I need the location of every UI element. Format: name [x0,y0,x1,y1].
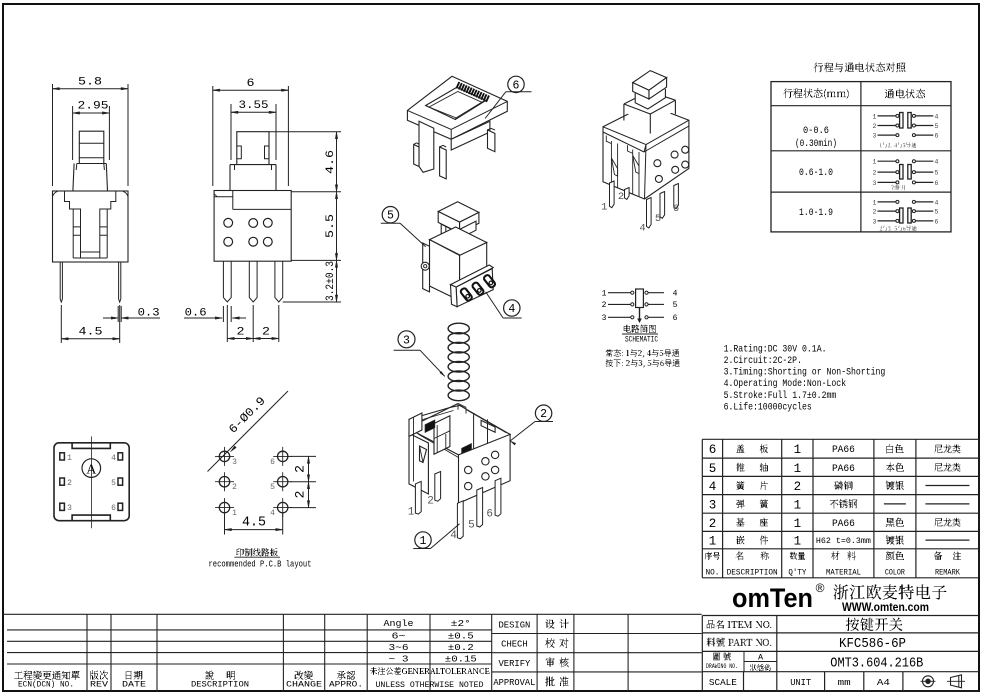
svg-text:3: 3 [873,218,877,225]
svg-text:1: 1 [794,498,802,512]
svg-text:PA66: PA66 [832,444,855,455]
svg-text:6: 6 [111,504,116,513]
svg-text:0-0.6: 0-0.6 [803,126,829,137]
svg-text:REMARK: REMARK [935,568,960,577]
svg-text:2: 2 [262,327,270,339]
svg-text:omTen: omTen [732,583,813,613]
svg-text:1: 1 [408,507,415,519]
svg-text:2.Circuit:2C-2P.: 2.Circuit:2C-2P. [724,355,802,367]
svg-text:2: 2 [293,491,308,499]
svg-text:4: 4 [673,290,678,299]
svg-text:2: 2 [540,408,547,421]
svg-text:2.95: 2.95 [78,101,109,113]
svg-text:DRAWING NO.: DRAWING NO. [706,663,738,670]
svg-text:REV: REV [90,680,109,690]
svg-text:1: 1 [873,113,877,120]
svg-text:2: 2 [794,480,802,494]
svg-text:1: 1 [794,443,802,457]
svg-text:4: 4 [639,223,645,235]
svg-text:2: 2 [427,496,434,508]
svg-text:6: 6 [935,218,939,225]
svg-text:DESCRIPTION: DESCRIPTION [727,568,778,577]
svg-text:1: 1 [420,535,427,548]
svg-text:2: 2 [232,483,237,492]
svg-text:MATERIAL: MATERIAL [826,568,861,577]
svg-text:6: 6 [513,79,520,92]
svg-text:2: 2 [709,517,717,531]
svg-text:±0.2: ±0.2 [448,642,474,653]
svg-text:CHECH: CHECH [501,640,528,650]
svg-text:6: 6 [709,443,717,457]
svg-text:6: 6 [270,458,275,467]
svg-text:4: 4 [935,159,939,166]
svg-text:2: 2 [873,209,877,216]
svg-text:6: 6 [673,314,678,323]
svg-text:A: A [758,653,764,663]
svg-text:UNLESS OTHERWISE NOTED: UNLESS OTHERWISE NOTED [376,680,484,690]
svg-text:4: 4 [508,303,515,316]
svg-text:APPROVAL: APPROVAL [493,678,535,688]
svg-text:Angle: Angle [384,618,414,629]
svg-text:2: 2 [67,479,72,488]
svg-text:0.6-1.0: 0.6-1.0 [799,168,833,179]
svg-text:2: 2 [873,170,877,177]
svg-text:5: 5 [387,210,394,223]
svg-text:®: ® [816,581,825,595]
svg-text:2: 2 [293,465,308,473]
svg-text:4: 4 [270,509,275,518]
svg-text:3: 3 [709,498,717,512]
svg-text:5: 5 [468,519,475,531]
svg-text:DESCRIPTION: DESCRIPTION [191,680,249,690]
svg-text:Q'TY: Q'TY [788,568,806,577]
svg-text:5: 5 [655,213,661,225]
svg-text:1: 1 [709,535,717,549]
svg-text:4.Operating Mode:Non-Lock: 4.Operating Mode:Non-Lock [724,378,847,390]
svg-text:mm: mm [838,677,851,688]
svg-text:WWW.omten.com: WWW.omten.com [842,600,929,614]
svg-text:PA66: PA66 [832,463,855,474]
svg-text:NO.: NO. [705,568,719,577]
svg-text:5: 5 [709,462,717,476]
svg-text:(0.30min): (0.30min) [795,138,837,150]
svg-text:A4: A4 [877,677,890,688]
svg-text:1: 1 [602,290,607,299]
svg-text:SCHEMATIC: SCHEMATIC [625,336,658,345]
svg-text:1: 1 [873,159,877,166]
svg-text:ECN(DCN) NO.: ECN(DCN) NO. [18,680,74,690]
svg-text:3: 3 [602,314,607,323]
svg-text:5.8: 5.8 [78,77,102,89]
svg-text:2: 2 [618,191,624,203]
svg-text:5: 5 [935,209,939,216]
svg-text:5: 5 [673,301,678,310]
svg-text:4: 4 [450,530,457,542]
svg-text:3: 3 [403,334,410,347]
svg-text:2: 2 [602,301,607,310]
svg-text:recommended P.C.B layout: recommended P.C.B layout [209,559,312,569]
svg-text:4: 4 [709,480,717,494]
svg-text:SCALE: SCALE [709,677,737,688]
svg-text:5: 5 [935,123,939,130]
svg-text:4.5: 4.5 [242,514,266,530]
svg-text:PA66: PA66 [832,518,855,529]
svg-text:3.Timing:Shorting or Non-Short: 3.Timing:Shorting or Non-Shorting [724,367,886,379]
svg-text:OMT3.604.216B: OMT3.604.216B [830,657,923,672]
svg-text:1: 1 [794,517,802,531]
svg-text:6: 6 [935,180,939,187]
svg-text:6~: 6~ [392,631,406,642]
svg-text:COLOR: COLOR [885,568,905,577]
svg-text:5.Stroke:Full 1.7±0.2mm: 5.Stroke:Full 1.7±0.2mm [724,390,837,402]
svg-text:4: 4 [111,454,116,463]
svg-text:H62 t=0.3mm: H62 t=0.3mm [816,537,871,546]
svg-text:1.0-1.9: 1.0-1.9 [799,208,833,219]
svg-text:1: 1 [794,535,802,549]
svg-text:6: 6 [486,509,493,521]
svg-text:1: 1 [601,202,607,214]
svg-text:4.5: 4.5 [79,327,103,339]
svg-text:2: 2 [873,123,877,130]
svg-text:1: 1 [232,509,237,518]
svg-text:6: 6 [935,133,939,140]
svg-text:4: 4 [935,199,939,206]
svg-text:UNIT: UNIT [790,677,811,688]
svg-text:3.2±0.3: 3.2±0.3 [325,261,337,301]
svg-text:6: 6 [673,203,679,215]
svg-text:CHANGE: CHANGE [286,680,322,690]
svg-text:5: 5 [270,483,275,492]
svg-text:5.5: 5.5 [325,214,337,238]
svg-text:5: 5 [935,170,939,177]
svg-text:3: 3 [873,180,877,187]
svg-text:KFC586-6P: KFC586-6P [839,637,906,652]
svg-text:4.6: 4.6 [325,150,337,174]
svg-text:A: A [86,463,97,478]
svg-text:5: 5 [111,479,116,488]
svg-text:1: 1 [873,199,877,206]
svg-text:1: 1 [67,454,72,463]
svg-text:VERIFY: VERIFY [499,659,531,669]
svg-text:6.Life:10000cycles: 6.Life:10000cycles [724,401,812,413]
svg-text:DATE: DATE [122,680,146,690]
svg-text:3~6: 3~6 [389,642,409,653]
svg-text:±0.5: ±0.5 [448,631,474,642]
svg-text:1.Rating:DC 30V 0.1A.: 1.Rating:DC 30V 0.1A. [724,343,827,355]
svg-text:6-Ø0.9: 6-Ø0.9 [226,394,268,436]
svg-text:4: 4 [935,113,939,120]
svg-text:APPRO.: APPRO. [329,680,363,690]
svg-text:3: 3 [67,504,72,513]
svg-text:3.55: 3.55 [239,100,269,112]
svg-text:2: 2 [237,327,245,339]
svg-text:±0.15: ±0.15 [445,654,477,665]
svg-text:±2°: ±2° [451,618,471,629]
svg-text:1: 1 [794,462,802,476]
svg-text:3: 3 [232,458,237,467]
svg-text:3: 3 [873,133,877,140]
svg-text:6: 6 [247,78,255,90]
svg-text:~ 3: ~ 3 [389,654,409,665]
svg-text:DESIGN: DESIGN [499,620,531,630]
